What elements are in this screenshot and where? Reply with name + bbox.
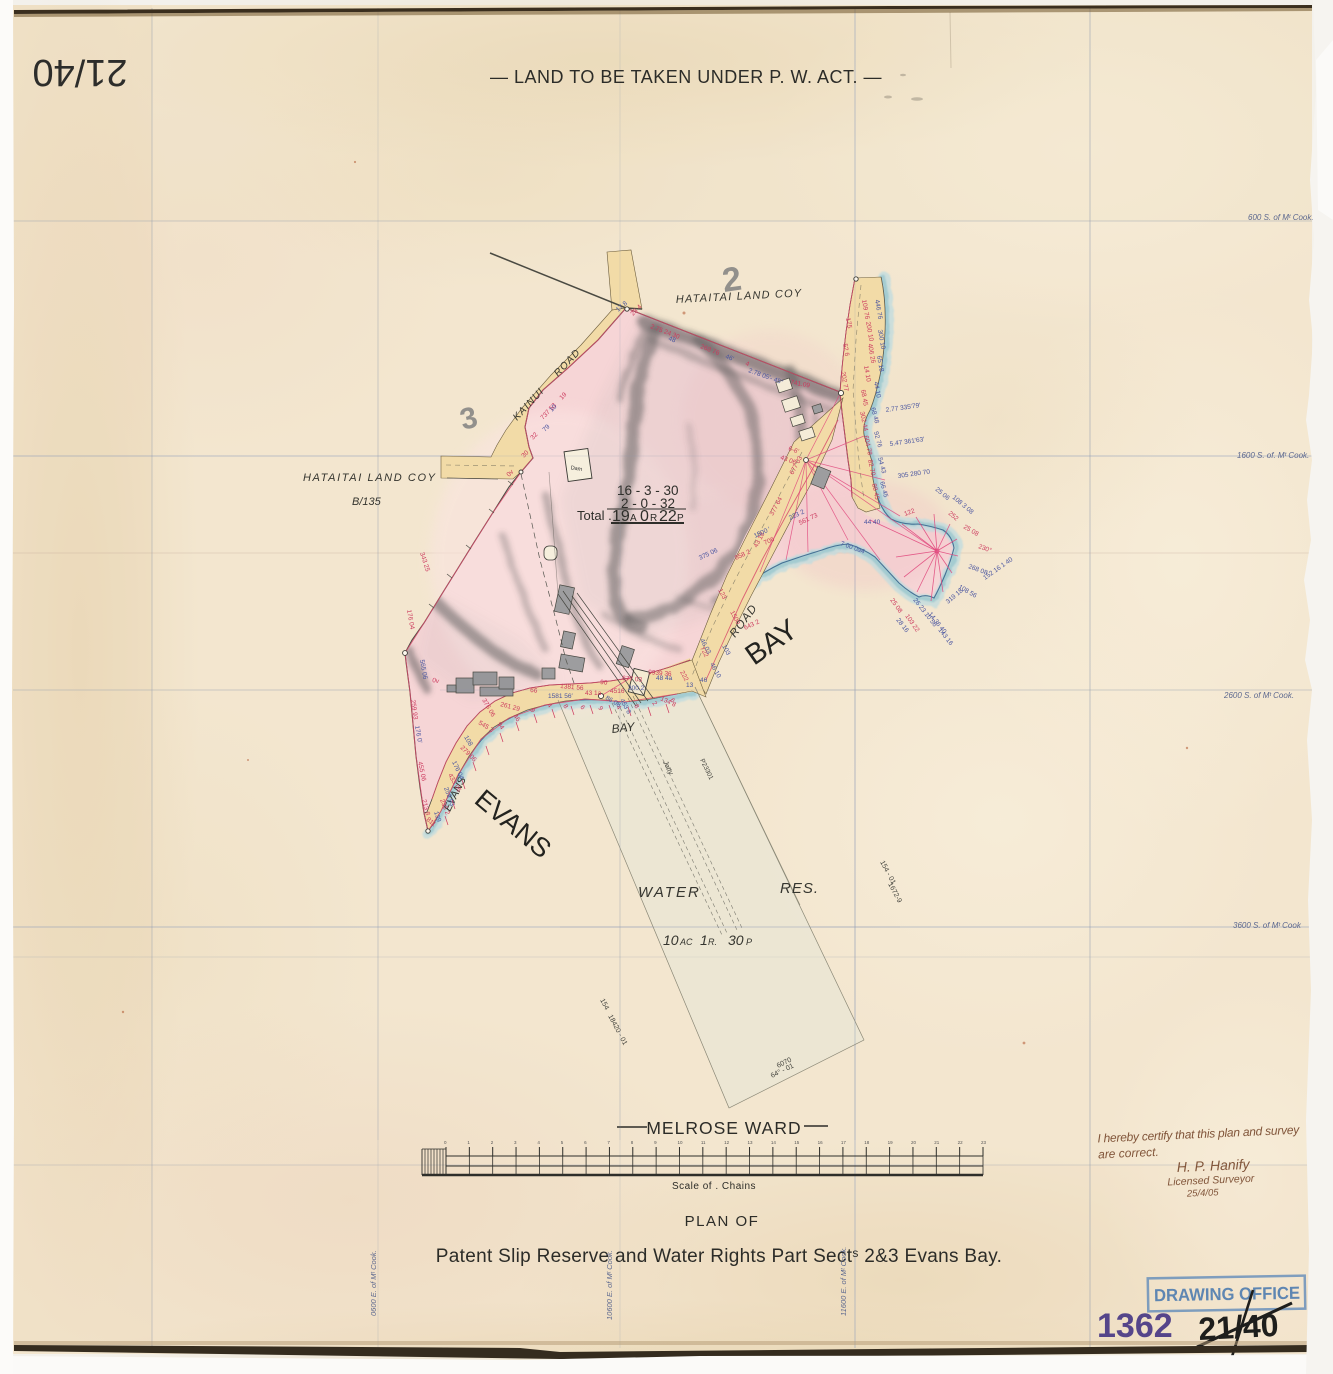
- svg-text:10: 10: [677, 1140, 683, 1145]
- svg-text:B/135: B/135: [352, 496, 382, 508]
- svg-text:14: 14: [771, 1140, 777, 1145]
- svg-text:18: 18: [864, 1140, 870, 1145]
- svg-text:WATER: WATER: [638, 884, 701, 901]
- svg-text:90: 90: [600, 679, 608, 687]
- svg-text:BAY: BAY: [611, 720, 636, 736]
- svg-text:H. P. Hanify: H. P. Hanify: [1176, 1156, 1251, 1175]
- svg-text:11600 E. of Mᵗ Cook.: 11600 E. of Mᵗ Cook.: [839, 1247, 848, 1316]
- svg-text:2600 S. of Mᵗ Cook.: 2600 S. of Mᵗ Cook.: [1223, 691, 1294, 700]
- svg-text:23: 23: [981, 1140, 987, 1145]
- svg-text:MELROSE WARD: MELROSE WARD: [646, 1118, 801, 1138]
- svg-text:13: 13: [748, 1140, 754, 1145]
- svg-text:12: 12: [724, 1140, 730, 1145]
- svg-text:1: 1: [700, 932, 708, 948]
- svg-text:21: 21: [934, 1140, 940, 1145]
- svg-text:11: 11: [701, 1140, 706, 1145]
- svg-text:600 S. of Mᵗ Cook.: 600 S. of Mᵗ Cook.: [1248, 213, 1314, 222]
- svg-text:HATAITAI LAND COY: HATAITAI LAND COY: [303, 472, 437, 484]
- svg-text:17: 17: [841, 1140, 847, 1145]
- svg-text:Total .: Total .: [577, 508, 612, 523]
- svg-text:43 1a: 43 1a: [585, 690, 602, 697]
- svg-text:30: 30: [728, 932, 744, 948]
- svg-text:21/40: 21/40: [32, 51, 127, 93]
- svg-text:AC: AC: [679, 937, 693, 947]
- svg-text:22: 22: [958, 1140, 964, 1145]
- svg-text:66: 66: [530, 687, 538, 695]
- svg-text:46: 46: [700, 677, 708, 684]
- svg-text:44 40: 44 40: [864, 519, 881, 526]
- svg-text:16: 16: [818, 1140, 824, 1145]
- svg-text:10: 10: [663, 932, 679, 948]
- svg-text:Patent Slip Reserve and Wa: Patent Slip Reserve and Water Rights Par…: [436, 1246, 1002, 1267]
- svg-text:19: 19: [888, 1140, 894, 1145]
- svg-text:15: 15: [794, 1140, 800, 1145]
- svg-text:DRAWING OFFICE: DRAWING OFFICE: [1154, 1283, 1300, 1306]
- svg-text:20: 20: [911, 1140, 917, 1145]
- svg-text:4516: 4516: [610, 688, 625, 695]
- svg-text:P: P: [746, 937, 752, 947]
- svg-text:25/4/05: 25/4/05: [1186, 1187, 1220, 1199]
- svg-text:3600 S. of Mᵗ Cook: 3600 S. of Mᵗ Cook: [1233, 921, 1302, 930]
- svg-text:RES.: RES.: [780, 880, 819, 897]
- svg-text:13: 13: [686, 682, 694, 689]
- svg-text:1600 S. of. Mᵗ Cook.: 1600 S. of. Mᵗ Cook.: [1237, 451, 1309, 460]
- svg-text:300 2: 300 2: [628, 685, 645, 692]
- svg-text:10600 E. of Mᵗ Cook.: 10600 E. of Mᵗ Cook.: [605, 1250, 614, 1320]
- svg-text:1581 56′: 1581 56′: [548, 693, 573, 700]
- svg-text:— LAND TO BE TAKEN UNDER P. W.: — LAND TO BE TAKEN UNDER P. W. ACT. —: [490, 67, 882, 87]
- svg-text:Scale of . Chains: Scale of . Chains: [672, 1181, 756, 1192]
- svg-text:R.: R.: [708, 937, 717, 947]
- svg-text:PLAN OF: PLAN OF: [685, 1213, 760, 1230]
- svg-text:1362: 1362: [1097, 1307, 1173, 1345]
- svg-text:are correct.: are correct.: [1098, 1145, 1159, 1162]
- svg-text:0600 E. of Mᵗ Cook.: 0600 E. of Mᵗ Cook.: [369, 1250, 378, 1316]
- svg-text:48 4a: 48 4a: [656, 675, 673, 682]
